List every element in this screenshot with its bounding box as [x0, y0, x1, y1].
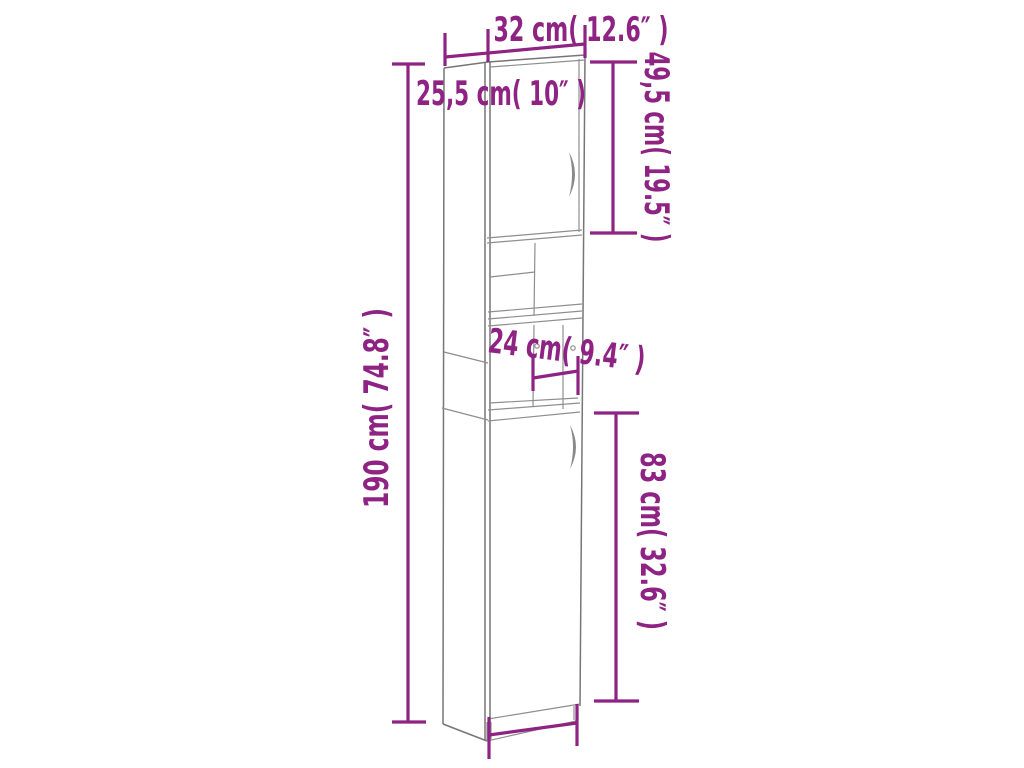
upper-door-handle-icon	[569, 152, 575, 197]
lower-door-top-edge	[488, 412, 580, 421]
cabinet-side-bottom-edge	[443, 724, 487, 741]
product-dimension-diagram: 32 cm( 12.6″ ) 25,5 cm( 10″ ) 49,5 cm( 1…	[0, 0, 1024, 768]
cabinet-line-drawing	[442, 55, 585, 741]
lower-niche-bottom-front-top-edge	[488, 403, 580, 410]
side-panel-joint-line-upper	[444, 352, 488, 363]
side-panel-joint-line-lower	[442, 408, 488, 420]
product-image-canvas: 32 cm( 12.6″ ) 25,5 cm( 10″ ) 49,5 cm( 1…	[0, 0, 1024, 768]
label-lower-door-height: 83 cm( 32.6″ )	[632, 452, 672, 630]
lower-door-bottom-edge	[488, 704, 580, 719]
lower-door-handle-icon	[570, 425, 576, 469]
cabinet-front-right-edge	[580, 55, 585, 706]
cabinet-carcass	[443, 55, 585, 741]
bottom-width-line	[489, 723, 577, 735]
label-total-height: 190 cm( 74.8″ )	[357, 308, 397, 508]
lower-door	[488, 412, 580, 719]
cabinet-side-top-edge	[444, 62, 488, 68]
label-depth: 25,5 cm( 10″ )	[416, 74, 586, 114]
label-upper-door-height: 49,5 cm( 19.5″ )	[636, 52, 676, 243]
dimension-line-total-height	[392, 64, 426, 722]
niche-width-line	[533, 371, 578, 378]
upper-niche-shelf-line	[490, 272, 535, 277]
dimension-labels: 32 cm( 12.6″ ) 25,5 cm( 10″ ) 49,5 cm( 1…	[357, 10, 676, 630]
middle-shelf-top-edge	[488, 304, 582, 312]
dimension-lines	[392, 25, 639, 759]
cabinet-side-left-edge	[443, 68, 444, 724]
label-top-width: 32 cm( 12.6″ )	[494, 10, 669, 50]
dimension-line-upper-door-height	[590, 62, 637, 233]
middle-shelf-front-top-edge	[488, 311, 582, 319]
upper-niche-back-corner-line	[534, 243, 535, 316]
